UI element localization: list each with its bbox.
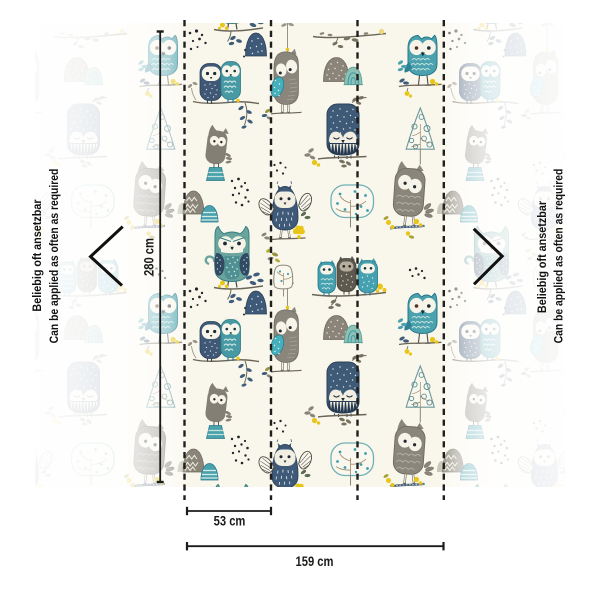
svg-text:Can be applied as often as req: Can be applied as often as required [49, 169, 62, 344]
svg-text:Beliebig oft ansetzbar: Beliebig oft ansetzbar [536, 200, 549, 313]
svg-text:280 cm: 280 cm [141, 238, 156, 276]
svg-text:Beliebig oft ansetzbar: Beliebig oft ansetzbar [32, 199, 45, 312]
svg-text:159 cm: 159 cm [296, 554, 334, 569]
svg-text:53 cm: 53 cm [214, 513, 246, 528]
svg-text:Can be applied as often as req: Can be applied as often as required [553, 169, 566, 344]
